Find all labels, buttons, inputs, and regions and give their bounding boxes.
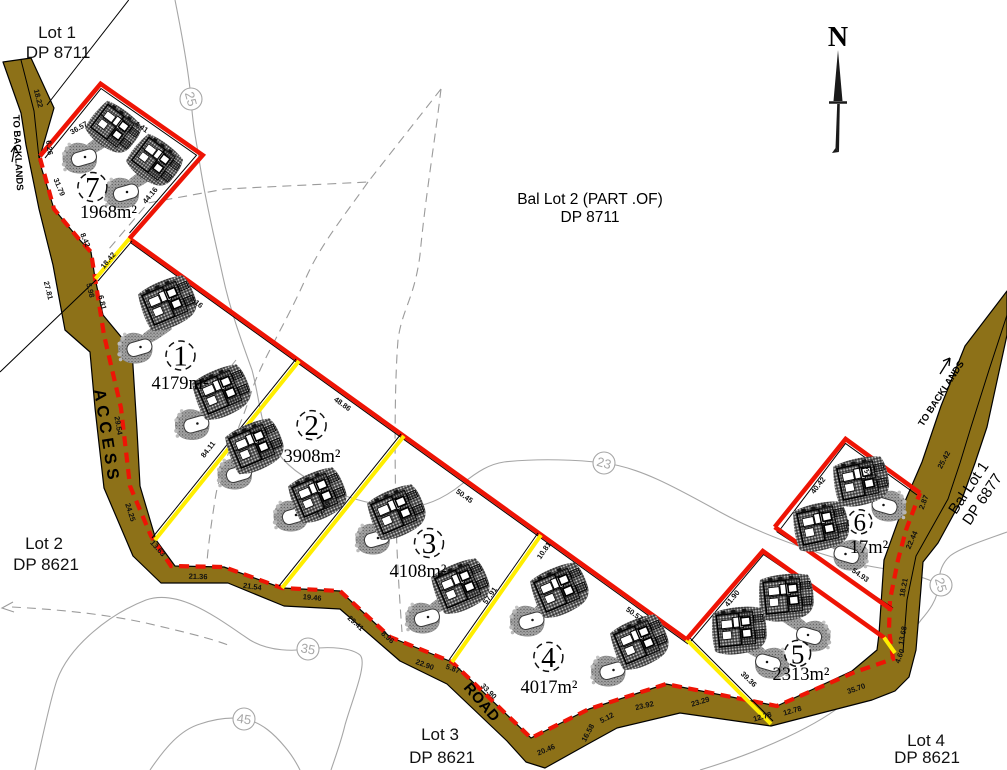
svg-text:3: 3 (422, 528, 437, 560)
svg-text:Bal Lot 2 (PART .OF): Bal Lot 2 (PART .OF) (517, 191, 663, 208)
svg-text:6: 6 (854, 509, 867, 536)
svg-text:17m²: 17m² (850, 538, 889, 558)
svg-text:19.46: 19.46 (302, 592, 321, 603)
svg-text:DP 8711: DP 8711 (26, 43, 91, 62)
svg-text:Lot 1: Lot 1 (38, 23, 76, 42)
svg-text:DP 8621: DP 8621 (894, 748, 960, 767)
svg-text:35: 35 (300, 640, 317, 657)
svg-text:4108m²: 4108m² (390, 562, 447, 582)
svg-text:45: 45 (236, 711, 252, 728)
svg-text:4017m²: 4017m² (521, 678, 578, 698)
svg-text:3908m²: 3908m² (284, 447, 341, 467)
svg-text:21.36: 21.36 (189, 572, 208, 582)
svg-text:Lot 2: Lot 2 (25, 534, 63, 553)
svg-text:7: 7 (85, 172, 100, 204)
svg-text:N: N (828, 22, 848, 53)
svg-text:2: 2 (304, 410, 319, 442)
svg-text:2313m²: 2313m² (773, 665, 830, 685)
svg-text:4: 4 (541, 642, 556, 674)
svg-text:Lot 3: Lot 3 (421, 725, 459, 744)
svg-text:4179m²: 4179m² (152, 374, 209, 394)
svg-text:1: 1 (173, 341, 188, 373)
svg-text:DP 8621: DP 8621 (13, 555, 79, 574)
svg-text:DP 8711: DP 8711 (561, 209, 620, 226)
svg-text:1968m²: 1968m² (80, 203, 137, 223)
svg-text:DP 8621: DP 8621 (409, 748, 475, 767)
